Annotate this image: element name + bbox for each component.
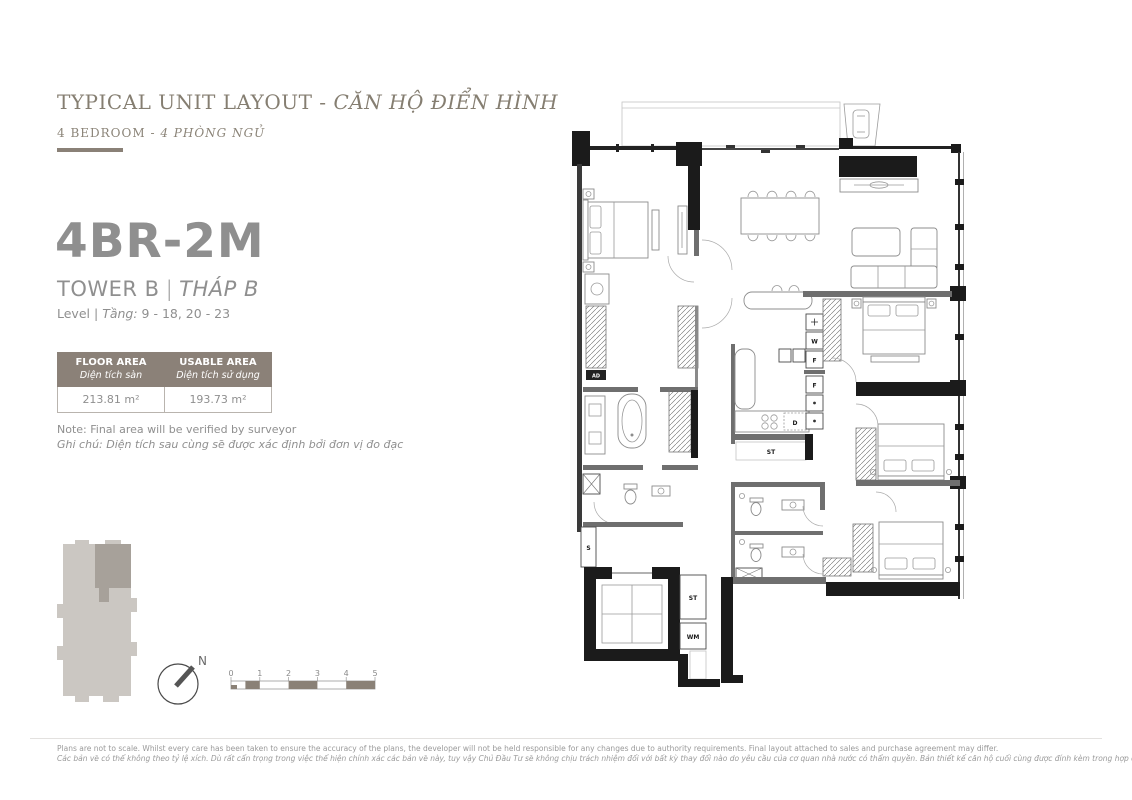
plan-label-ad: AD	[592, 374, 600, 380]
dining-set	[741, 191, 819, 241]
bedroom-3	[856, 404, 960, 486]
vanity-icon	[585, 274, 609, 304]
elevator-lobby: ST WM	[584, 567, 720, 687]
door-arc	[702, 240, 732, 270]
door-arc	[876, 492, 896, 512]
door-arc	[702, 298, 732, 328]
unit-level: Level | Tầng: 9 - 18, 20 - 23	[57, 306, 230, 321]
walk-in-closet: AD	[583, 274, 698, 392]
plan-label-s: S	[586, 545, 590, 552]
area-table: FLOOR AREADiện tích sàn USABLE AREADiện …	[57, 352, 272, 413]
door-arc	[803, 554, 823, 574]
bedroom-4	[823, 492, 960, 596]
double-vanity-icon	[585, 396, 605, 454]
bar-stool-icon	[789, 286, 799, 292]
tower-en: TOWER B	[57, 277, 160, 301]
unit-code: 4BR-2M	[55, 214, 265, 269]
plan-label-f-upper: F	[812, 358, 816, 365]
compass-needle	[176, 667, 193, 686]
sink-icon	[782, 547, 804, 557]
dining-chair-icon	[748, 235, 758, 241]
door-arc	[668, 256, 694, 282]
dining-table-icon	[741, 198, 819, 234]
floor-plan-svg: AD	[556, 94, 988, 716]
note-en: Note: Final area will be verified by sur…	[57, 423, 296, 436]
level-value: 9 - 18, 20 - 23	[142, 306, 231, 321]
level-vi: Tầng:	[102, 306, 137, 321]
master-bed-icon	[583, 200, 659, 260]
scale-tick-labels: 0 1 2 3 4 5	[228, 669, 377, 678]
footer-disclaimer-en: Plans are not to scale. Whilst every car…	[57, 744, 998, 753]
bed-icon	[879, 522, 943, 579]
master-tv-console-icon	[678, 206, 687, 254]
subtitle-vi: 4 PHÒNG NGỦ	[160, 126, 265, 140]
north-label: N	[198, 654, 207, 668]
master-bathroom	[583, 390, 698, 470]
scale-tick-2: 2	[286, 669, 291, 678]
page-title-en: TYPICAL UNIT LAYOUT	[57, 90, 312, 114]
floor-area-header-en: FLOOR AREA	[75, 357, 146, 368]
compass: N	[152, 652, 216, 710]
floor-area-header: FLOOR AREADiện tích sàn	[58, 353, 165, 387]
wardrobe-icon	[853, 524, 873, 572]
subtitle-divider: -	[146, 126, 161, 140]
scale-tick-4: 4	[344, 669, 349, 678]
scale-tick-3: 3	[315, 669, 320, 678]
plan-label-wm: WM	[687, 634, 700, 641]
brochure-page: TYPICAL UNIT LAYOUT - CĂN HỘ ĐIỂN HÌNH 4…	[0, 0, 1132, 800]
level-separator: |	[94, 306, 98, 321]
window-wall	[950, 152, 966, 599]
bar-stool-icon	[772, 286, 782, 292]
dining-chair-icon	[805, 235, 815, 241]
plan-label-f-lower: F	[812, 383, 816, 390]
bathtub-icon	[618, 394, 646, 448]
page-subtitle: 4 BEDROOM - 4 PHÒNG NGỦ	[57, 126, 265, 140]
bed-icon	[878, 424, 944, 480]
dining-chair-icon	[805, 191, 815, 197]
bed-icon	[863, 297, 925, 362]
door-arc	[856, 404, 878, 426]
dining-chair-icon	[786, 235, 796, 241]
sink-icon	[652, 486, 670, 496]
plan-label-d: D	[793, 420, 798, 427]
subtitle-en: 4 BEDROOM	[57, 126, 146, 140]
master-bedroom	[583, 156, 700, 282]
unit-tower: TOWER B|THÁP B	[57, 277, 259, 301]
usable-area-header-vi: Diện tích sử dụng	[167, 370, 269, 382]
accent-bar	[57, 148, 123, 152]
note-vi: Ghi chú: Diện tích sau cùng sẽ được xác …	[57, 438, 403, 451]
scale-bar: 0 1 2 3 4 5	[226, 666, 382, 698]
dining-chair-icon	[767, 235, 777, 241]
counter-icon	[735, 349, 755, 409]
wardrobe-icon	[669, 390, 691, 452]
plan-label-w: W	[811, 339, 818, 346]
plan-label-st-kitchen: ST	[767, 449, 776, 456]
footer-divider	[30, 738, 1102, 739]
scale-tick-5: 5	[372, 669, 377, 678]
wardrobe-icon	[586, 306, 606, 368]
wardrobe-icon	[823, 299, 841, 361]
toilet-icon	[751, 549, 761, 562]
building-footprint	[55, 538, 139, 706]
master-wall	[688, 156, 700, 230]
footprint-outline	[57, 540, 137, 702]
door-arc	[832, 358, 856, 382]
door-arc	[594, 502, 616, 524]
floor-area-value: 213.81 m²	[58, 387, 165, 413]
bedroom-2	[823, 297, 960, 396]
title-divider: -	[312, 90, 333, 114]
toilet-icon	[624, 484, 637, 504]
dining-chair-icon	[748, 191, 758, 197]
scale-tick-0: 0	[228, 669, 233, 678]
footer-disclaimer-vi: Các bản vẽ có thể không theo tỷ lệ xích.…	[57, 754, 1132, 763]
toilet-icon	[751, 503, 761, 516]
level-en: Level	[57, 306, 90, 321]
scale-bar-graphic	[231, 677, 375, 689]
island-counter-icon	[744, 292, 812, 309]
coffee-table-icon	[852, 228, 900, 256]
plan-label-st-store: ST	[689, 595, 698, 602]
balcony-ledge	[622, 102, 840, 146]
kitchen: D ST	[731, 286, 813, 461]
floor-area-header-vi: Diện tích sàn	[60, 370, 162, 382]
usable-area-header-en: USABLE AREA	[179, 357, 256, 368]
usable-area-value: 193.73 m²	[165, 387, 272, 413]
page-title: TYPICAL UNIT LAYOUT - CĂN HỘ ĐIỂN HÌNH	[57, 90, 558, 114]
sink-icon	[782, 500, 804, 510]
dining-chair-icon	[767, 191, 777, 197]
corridor-wall	[721, 577, 743, 683]
powder-room: S	[581, 474, 683, 567]
scale-tick-1: 1	[257, 669, 262, 678]
wardrobe-icon	[823, 558, 851, 576]
usable-area-header: USABLE AREADiện tích sử dụng	[165, 353, 272, 387]
living-room	[803, 228, 952, 297]
wardrobe-icon	[856, 428, 876, 480]
bathroom-3	[733, 539, 826, 584]
dining-chair-icon	[786, 191, 796, 197]
tv-cabinet-icon	[839, 156, 918, 192]
tower-vi: THÁP B	[179, 277, 259, 301]
page-title-vi: CĂN HỘ ĐIỂN HÌNH	[333, 90, 558, 114]
tower-separator: |	[160, 277, 180, 301]
